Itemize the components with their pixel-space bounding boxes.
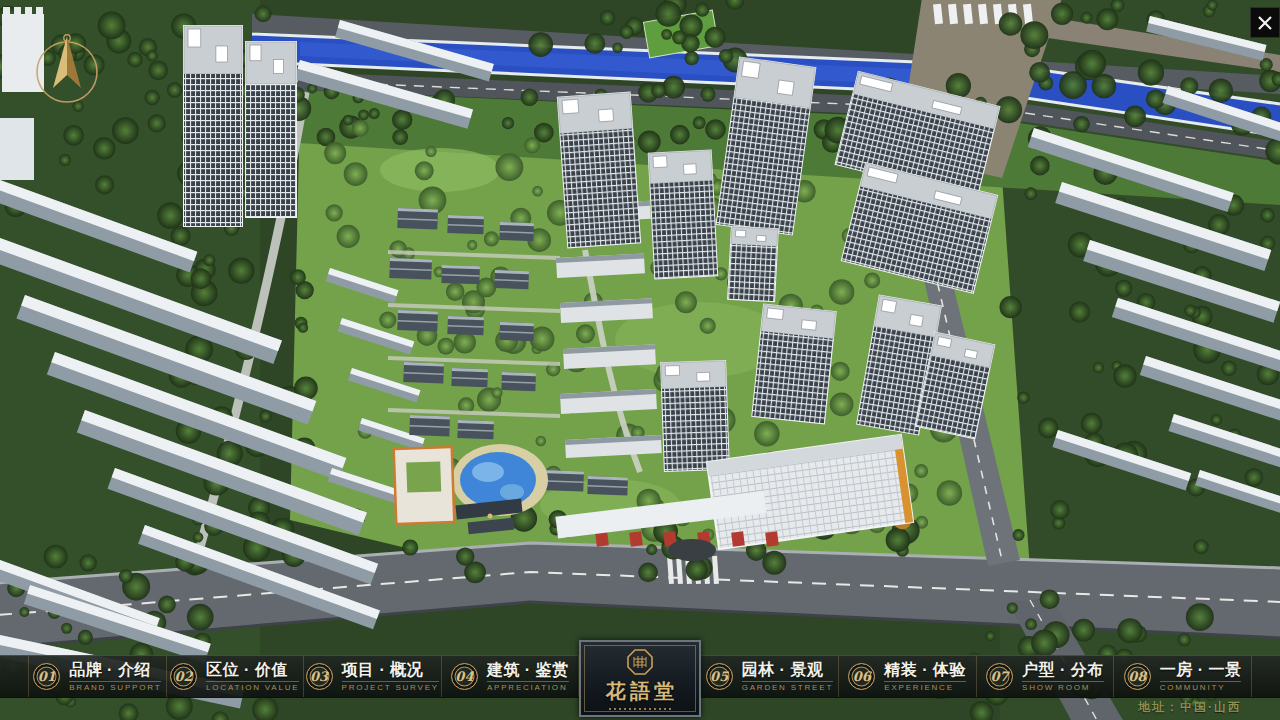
nav-item-subtitle: BRAND SUPPORT: [69, 681, 161, 692]
nav-item-label: 区位 · 价值: [206, 662, 288, 678]
nav-item-label: 精装 · 体验: [884, 662, 966, 678]
nav-item-subtitle: APPRECIATION: [487, 681, 569, 692]
presentation-screen: 01 品牌 · 介绍BRAND SUPPORT 02 区位 · 价值LOCATI…: [0, 0, 1280, 720]
close-icon: [1257, 15, 1273, 31]
nav-item-subtitle: LOCATION VALUE: [206, 681, 299, 692]
nav-group-left: 01 品牌 · 介绍BRAND SUPPORT 02 区位 · 价值LOCATI…: [0, 656, 579, 697]
nav-item-interior[interactable]: 06 精装 · 体验EXPERIENCE: [839, 656, 977, 697]
nav-item-architecture[interactable]: 04 建筑 · 鉴赏APPRECIATION: [442, 656, 580, 697]
logo-subtext-line: [609, 708, 671, 710]
nav-item-garden[interactable]: 05 园林 · 景观GARDEN STREET: [701, 656, 839, 697]
nav-item-views[interactable]: 08 一房 · 一景COMMUNITY: [1114, 656, 1252, 697]
nav-item-location[interactable]: 02 区位 · 价值LOCATION VALUE: [167, 656, 305, 697]
nav-item-subtitle: SHOW ROOM: [1022, 681, 1104, 692]
nav-item-subtitle: EXPERIENCE: [884, 681, 966, 692]
nav-number-badge: 03: [306, 663, 333, 690]
address-text: 地址：中国·山西: [1138, 699, 1242, 716]
project-logo-title: 花語堂: [606, 678, 678, 705]
nav-item-floorplan[interactable]: 07 户型 · 分布SHOW ROOM: [977, 656, 1115, 697]
project-logo-panel[interactable]: 花語堂: [579, 640, 701, 717]
nav-item-label: 园林 · 景观: [742, 662, 824, 678]
close-button[interactable]: [1250, 7, 1280, 38]
nav-number-badge: 06: [848, 663, 875, 690]
nav-item-subtitle: COMMUNITY: [1160, 681, 1242, 692]
nav-item-label: 户型 · 分布: [1022, 662, 1104, 678]
site-aerial-map[interactable]: [0, 0, 1280, 720]
nav-number-badge: 07: [986, 663, 1013, 690]
nav-item-subtitle: GARDEN STREET: [742, 681, 833, 692]
nav-item-label: 一房 · 一景: [1160, 662, 1242, 678]
nav-item-label: 品牌 · 介绍: [69, 662, 151, 678]
compass-icon: [31, 26, 103, 110]
nav-item-label: 建筑 · 鉴赏: [487, 662, 569, 678]
seal-icon: [626, 648, 654, 676]
nav-number-badge: 04: [451, 663, 478, 690]
nav-number-badge: 05: [706, 663, 733, 690]
nav-number-badge: 08: [1124, 663, 1151, 690]
nav-item-subtitle: PROJECT SURVEY: [342, 681, 439, 692]
nav-number-badge: 02: [170, 663, 197, 690]
nav-item-brand[interactable]: 01 品牌 · 介绍BRAND SUPPORT: [28, 656, 167, 697]
nav-group-right: 05 园林 · 景观GARDEN STREET 06 精装 · 体验EXPERI…: [701, 656, 1280, 697]
nav-number-badge: 01: [33, 663, 60, 690]
nav-item-project[interactable]: 03 项目 · 概况PROJECT SURVEY: [304, 656, 442, 697]
nav-item-label: 项目 · 概况: [342, 662, 424, 678]
